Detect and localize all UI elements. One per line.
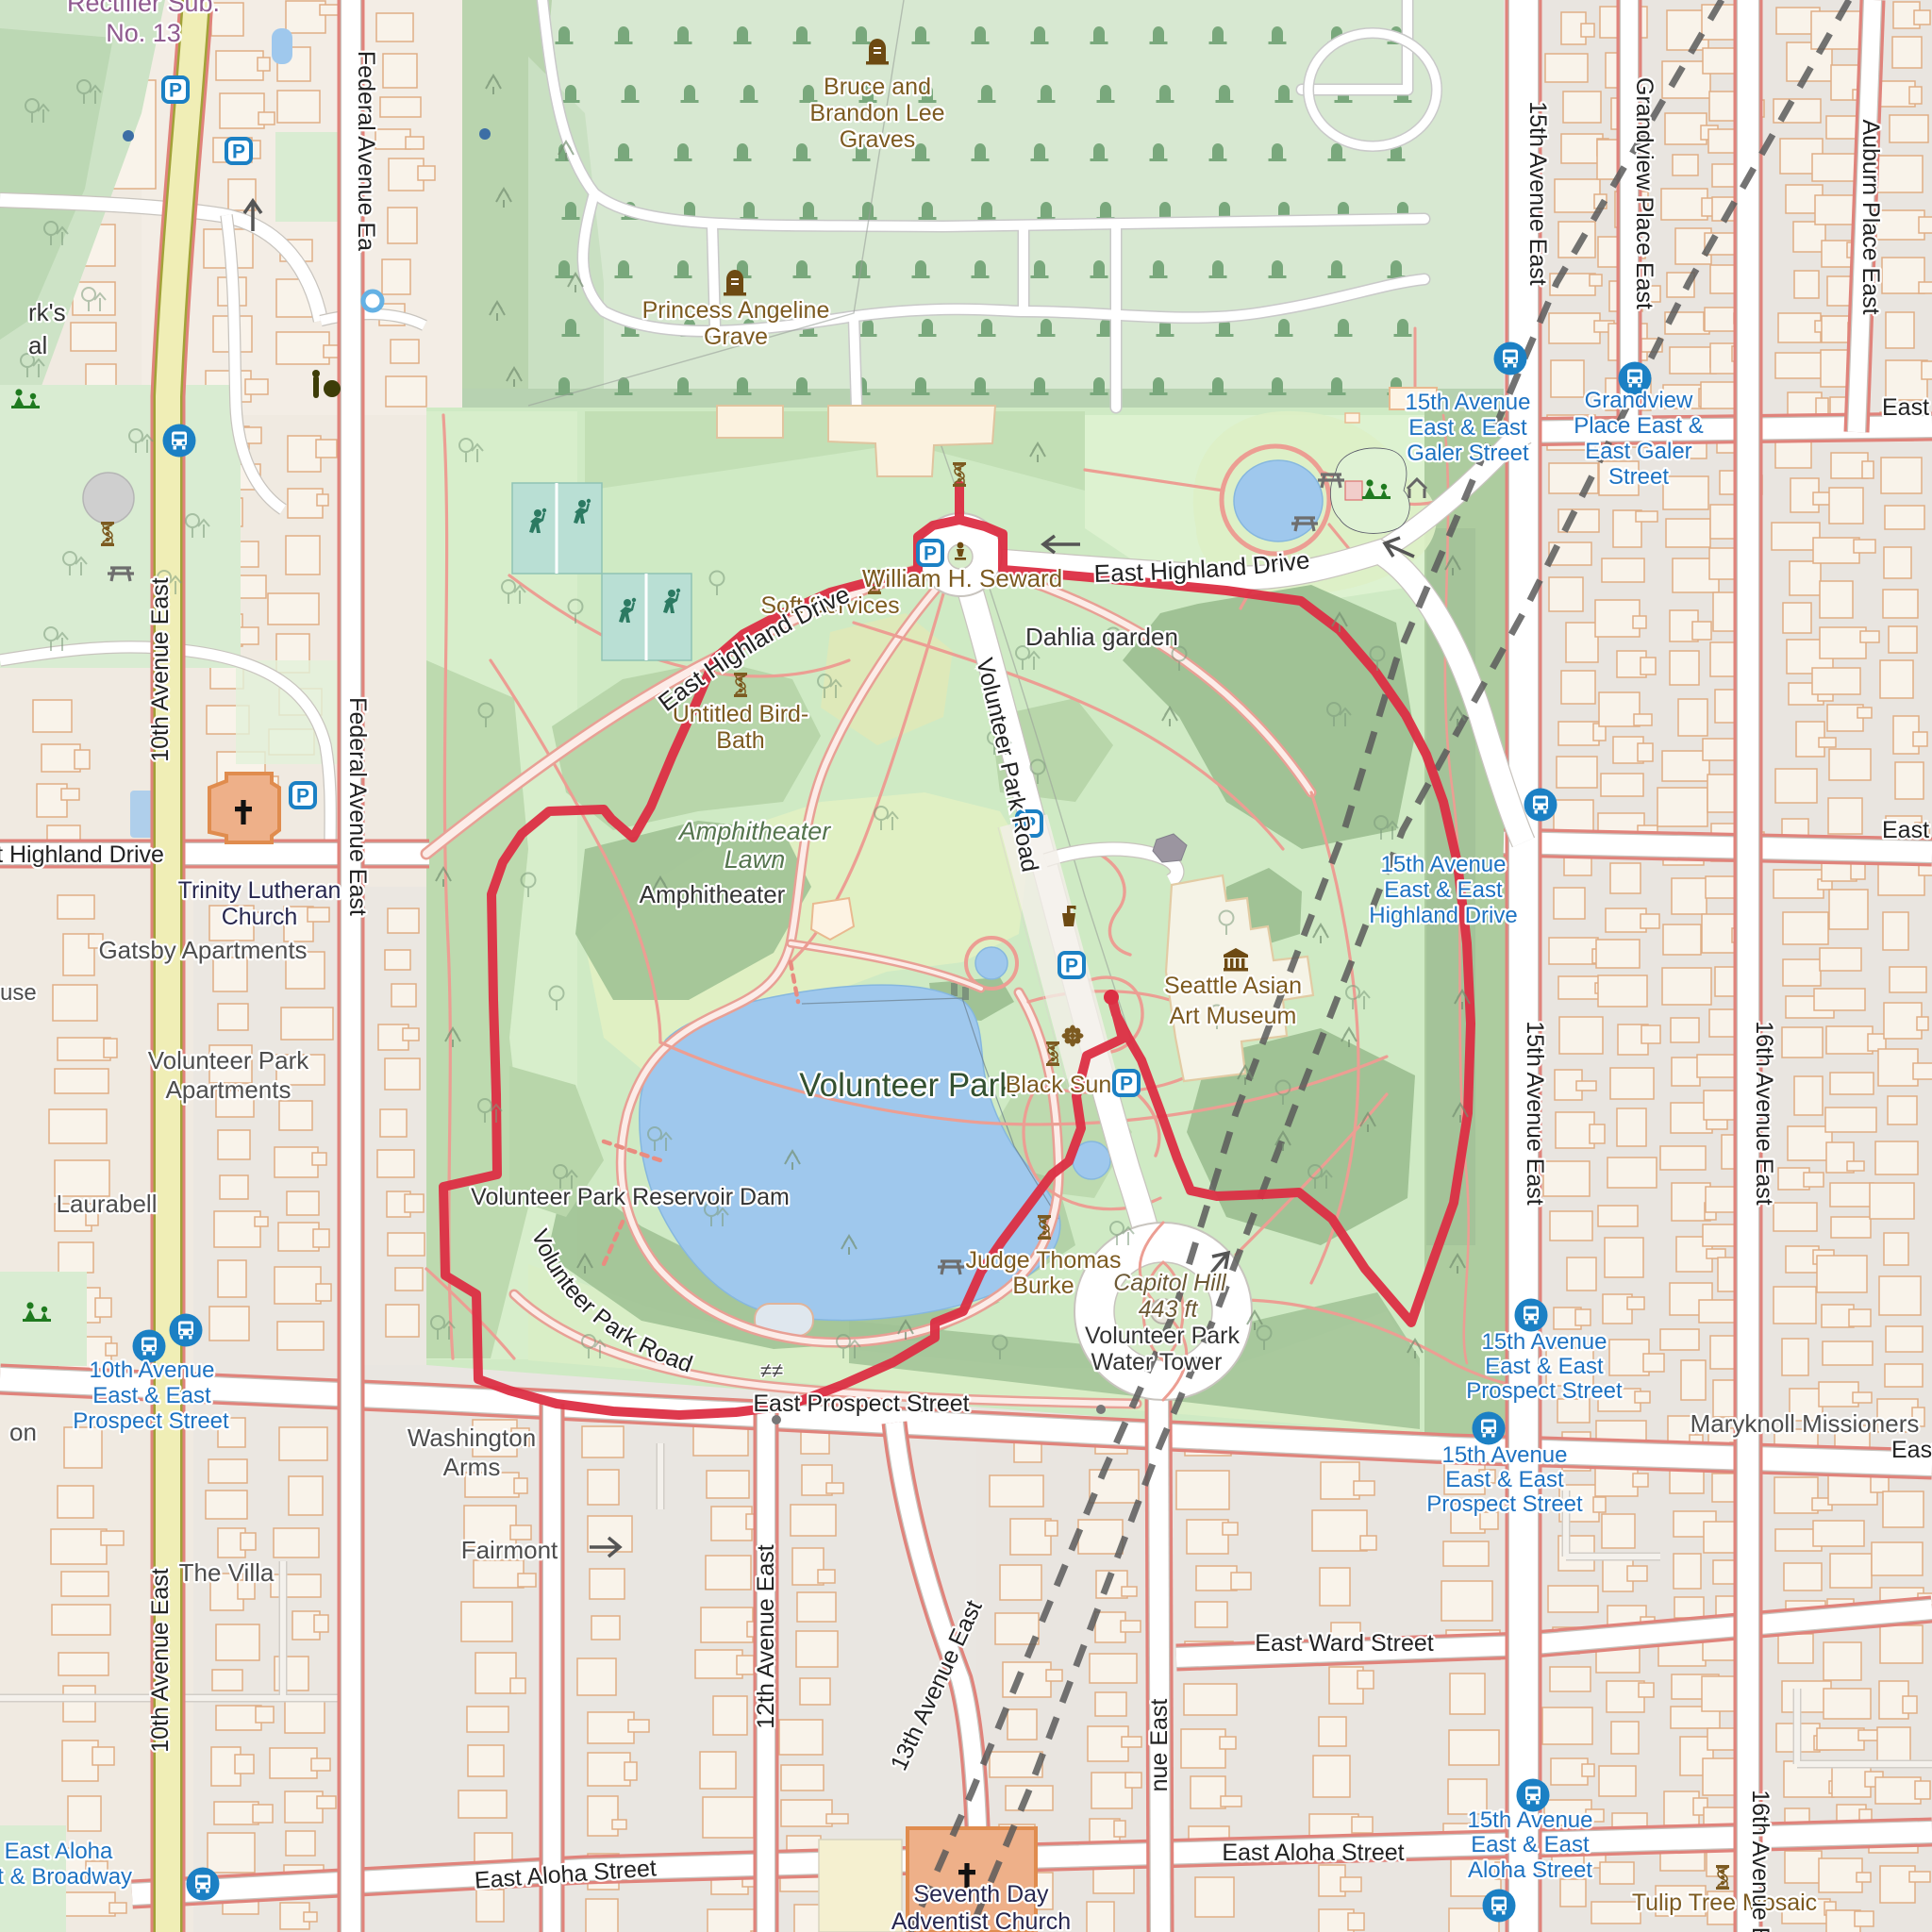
svg-text:Prospect Street: Prospect Street [1466,1378,1623,1404]
svg-text:The Villa: The Villa [179,1558,275,1587]
svg-text:10th Avenue: 10th Avenue [89,1357,214,1383]
svg-text:Street: Street [1608,464,1669,490]
svg-text:Grandview: Grandview [1585,388,1693,413]
svg-text:Prospect Street: Prospect Street [73,1408,229,1434]
svg-text:Capitol Hill: Capitol Hill [1113,1270,1227,1296]
svg-text:15th Avenue East: 15th Avenue East [1522,1021,1548,1206]
svg-text:nue East: nue East [1146,1699,1173,1792]
svg-text:10th Avenue East: 10th Avenue East [147,1568,174,1753]
svg-text:Place East &: Place East & [1574,413,1703,439]
svg-text:Volunteer Park: Volunteer Park [1085,1323,1240,1349]
svg-text:Bath: Bath [716,727,764,754]
svg-text:Aloha Street: Aloha Street [1468,1857,1592,1883]
svg-text:Amphitheater: Amphitheater [677,817,832,845]
svg-text:Federal Avenue East: Federal Avenue East [344,697,371,916]
svg-text:t Highland Drive: t Highland Drive [0,841,164,868]
svg-text:Burke: Burke [1012,1273,1074,1299]
svg-text:Grave: Grave [704,324,768,350]
svg-text:East Galer: East Galer [1585,439,1691,464]
svg-text:Black Sun: Black Sun [1006,1072,1112,1098]
svg-text:East Aloha: East Aloha [5,1839,113,1864]
svg-text:16th Avenue East: 16th Avenue East [1751,1021,1777,1206]
svg-text:al: al [28,331,47,359]
svg-text:East: East [1882,817,1929,843]
svg-text:use: use [0,980,37,1006]
svg-text:Tulip Tree Mosaic: Tulip Tree Mosaic [1632,1890,1817,1916]
svg-text:443 ft: 443 ft [1139,1296,1199,1323]
svg-text:Laurabell: Laurabell [57,1190,158,1218]
svg-text:Volunteer Park: Volunteer Park [148,1046,310,1074]
svg-text:15th Avenue: 15th Avenue [1481,1329,1607,1355]
svg-text:Untitled Bird-: Untitled Bird- [673,701,809,727]
svg-text:Galer Street: Galer Street [1407,441,1529,466]
svg-text:Brandon Lee: Brandon Lee [809,100,944,126]
svg-text:12th Avenue East: 12th Avenue East [753,1544,779,1729]
svg-text:15th Avenue: 15th Avenue [1405,390,1530,415]
svg-text:East: East [1882,394,1929,421]
svg-text:East & East: East & East [1471,1832,1590,1857]
svg-text:East Prospect Street: East Prospect Street [753,1391,969,1417]
svg-text:15th Avenue: 15th Avenue [1467,1807,1592,1833]
svg-text:Water Tower: Water Tower [1091,1349,1223,1375]
svg-text:Washington: Washington [408,1424,536,1452]
svg-text:No. 13: No. 13 [106,19,181,47]
svg-text:Adventist Church: Adventist Church [891,1908,1071,1932]
svg-text:Volunteer Park: Volunteer Park [799,1067,1016,1104]
svg-text:Apartments: Apartments [166,1075,291,1104]
svg-text:Maryknoll Missioners: Maryknoll Missioners [1690,1409,1920,1438]
svg-text:Amphitheater: Amphitheater [640,880,786,908]
svg-text:East & East: East & East [92,1383,211,1408]
svg-text:East Ward Street: East Ward Street [1255,1630,1433,1657]
svg-text:10th Avenue East: 10th Avenue East [147,577,174,762]
svg-text:Grandview Place East: Grandview Place East [1631,77,1657,309]
svg-text:Bruce and: Bruce and [824,74,931,100]
svg-text:rk's: rk's [28,298,66,326]
svg-text:East: East [1891,1437,1932,1463]
svg-text:Fairmont: Fairmont [461,1536,558,1564]
svg-text:East & East: East & East [1485,1354,1604,1379]
svg-text:Gatsby Apartments: Gatsby Apartments [98,936,307,964]
svg-text:Arms: Arms [443,1453,501,1481]
svg-text:William H. Seward: William H. Seward [862,564,1062,592]
svg-text:15th Avenue East: 15th Avenue East [1524,101,1551,286]
svg-text:East & East: East & East [1408,415,1527,441]
svg-text:Lawn: Lawn [724,845,786,874]
svg-text:Trinity Lutheran: Trinity Lutheran [178,877,341,904]
svg-text:Seattle Asian: Seattle Asian [1164,973,1302,999]
svg-text:et & Broadway: et & Broadway [0,1864,132,1890]
svg-text:Dahlia garden: Dahlia garden [1025,623,1178,651]
svg-text:Graves: Graves [840,126,916,153]
svg-text:Prospect Street: Prospect Street [1426,1491,1583,1517]
svg-text:15th Avenue: 15th Avenue [1380,852,1506,877]
svg-text:Art Museum: Art Museum [1170,1003,1297,1029]
svg-text:Seventh Day: Seventh Day [913,1881,1049,1907]
svg-text:East Aloha Street: East Aloha Street [1222,1840,1404,1866]
svg-text:≠≠: ≠≠ [760,1358,783,1382]
svg-text:Judge Thomas: Judge Thomas [966,1247,1122,1274]
svg-text:Volunteer Park Reservoir Dam: Volunteer Park Reservoir Dam [471,1184,790,1210]
svg-text:Highland Drive: Highland Drive [1369,903,1517,928]
svg-text:Church: Church [222,904,298,930]
svg-text:East & East: East & East [1445,1467,1564,1492]
svg-text:Rectifier Sub.: Rectifier Sub. [67,0,220,17]
svg-text:Princess Angeline: Princess Angeline [642,297,830,324]
svg-text:on: on [9,1418,37,1446]
svg-text:Federal Avenue Ea: Federal Avenue Ea [353,51,379,251]
svg-text:Auburn Place East: Auburn Place East [1857,119,1884,314]
svg-text:15th Avenue: 15th Avenue [1441,1442,1567,1468]
svg-text:16th Avenue East: 16th Avenue East [1747,1790,1774,1932]
svg-text:East & East: East & East [1384,877,1503,903]
